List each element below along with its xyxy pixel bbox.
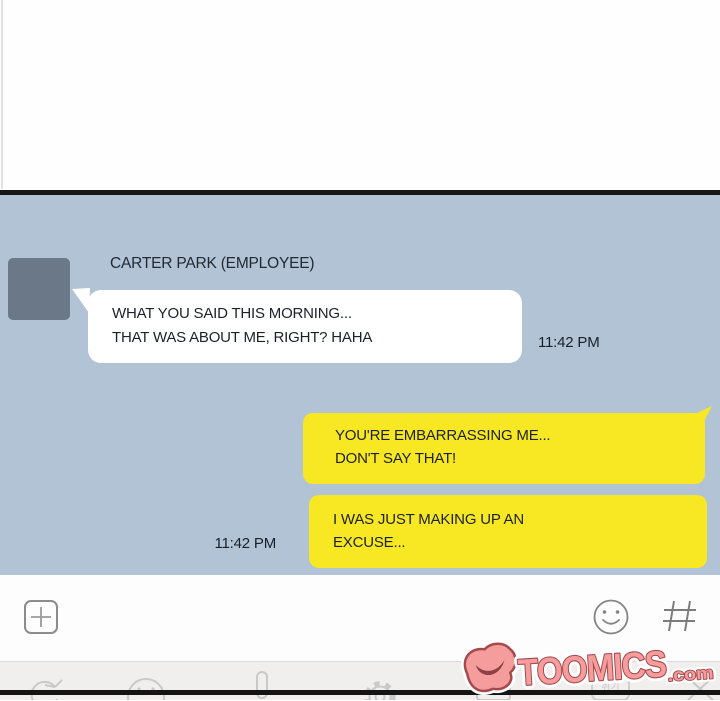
hashtag-icon [661,621,699,638]
message-toolbar [0,575,720,661]
timestamp: 11:42 PM [538,334,600,351]
message-bubble-outgoing: YOU'RE EMBARRASSING ME... DON'T SAY THAT… [303,413,705,484]
plus-icon [26,602,56,632]
smiley-icon [592,623,630,640]
avatar[interactable] [8,258,70,320]
keyboard-switch-icon[interactable] [477,667,510,700]
timestamp: 11:42 PM [186,535,276,552]
close-icon[interactable] [687,676,714,700]
panel-border-bottom [0,690,720,695]
sender-name: CARTER PARK (EMPLOYEE) [110,255,314,273]
message-line: WHAT YOU SAID THIS MORNING... [112,302,522,326]
previous-panel-gutter [0,0,720,190]
hashtag-button[interactable] [661,598,699,639]
message-bubble-incoming: WHAT YOU SAID THIS MORNING... THAT WAS A… [88,290,522,363]
chat-screen: CARTER PARK (EMPLOYEE) WHAT YOU SAID THI… [0,195,720,575]
message-line: I WAS JUST MAKING UP AN [333,508,707,531]
message-bubble-outgoing: I WAS JUST MAKING UP AN EXCUSE... [309,495,707,568]
emoji-button[interactable] [592,598,630,641]
message-line: THAT WAS ABOUT ME, RIGHT? HAHA [112,326,522,350]
message-line: DON'T SAY THAT! [335,447,705,470]
message-line: EXCUSE... [333,531,707,554]
message-line: YOU'RE EMBARRASSING ME... [335,424,705,447]
korean-key-icon[interactable]: 취기 [592,673,629,700]
page-edge-line [1,0,3,189]
attach-button[interactable] [24,600,58,634]
